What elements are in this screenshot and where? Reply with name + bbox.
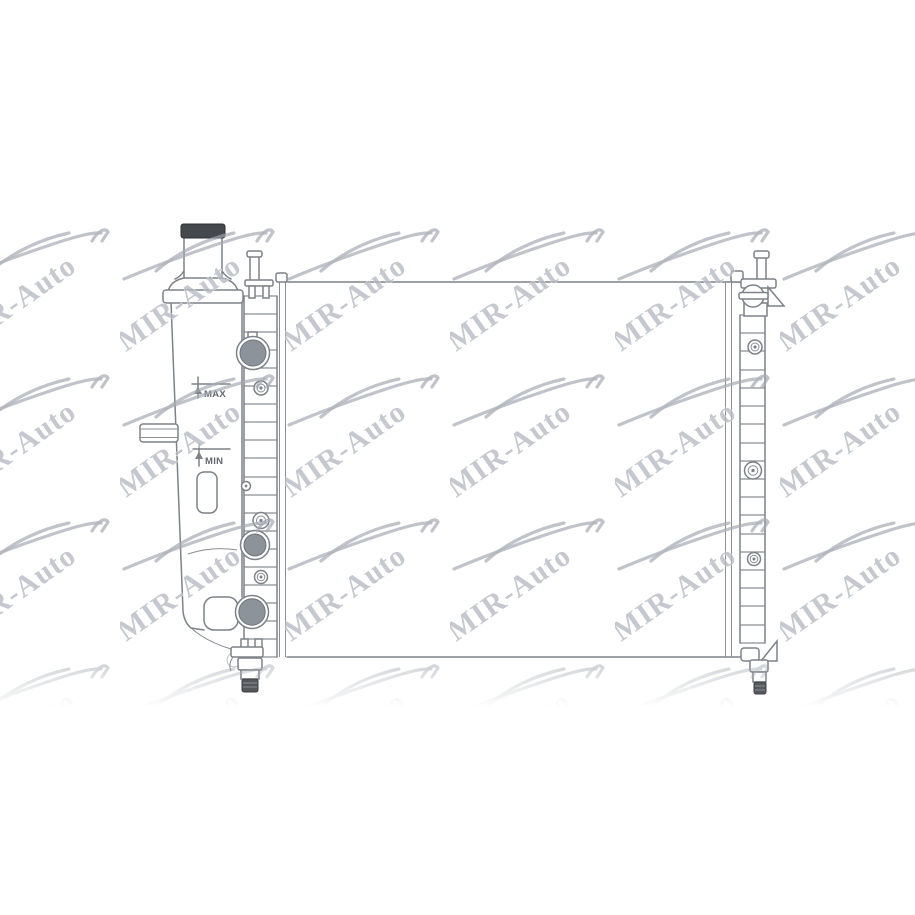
min-level-marker: MIN <box>193 444 230 467</box>
screw-marker <box>253 513 269 529</box>
mounting-bracket <box>140 424 178 442</box>
expansion-tank: MAX MIN <box>140 224 243 649</box>
min-arrow-icon <box>195 452 203 460</box>
right-tank <box>739 251 784 643</box>
top-clip-leg <box>249 286 255 298</box>
tank-drain-curve <box>191 628 231 649</box>
drain-assembly-right <box>741 641 777 694</box>
screw-marker <box>748 340 762 354</box>
screw-marker <box>745 462 762 479</box>
tank-level-curve <box>188 549 237 554</box>
drain-assembly-left <box>227 639 263 692</box>
min-label: MIN <box>205 456 223 467</box>
core-side-plate-right <box>726 282 732 657</box>
screw-marker <box>255 571 268 584</box>
filler-gusset-right <box>768 287 784 306</box>
drain-plug-mid <box>241 670 259 679</box>
top-clip-bar <box>245 280 273 286</box>
drain-bracket-bar <box>231 647 263 657</box>
expansion-cap <box>181 224 225 238</box>
max-arrow-icon <box>194 387 202 395</box>
tank-neck <box>175 237 231 279</box>
drain-plug-top <box>238 658 262 670</box>
hose-port-mid-disk <box>244 534 266 556</box>
screw-marker <box>242 482 251 491</box>
drain-bracket-right <box>741 648 759 661</box>
core-side-plate-left <box>280 278 286 657</box>
max-label: MAX <box>204 389 226 400</box>
radiator-filler-cap-disk <box>240 340 266 366</box>
drain-plug-left <box>242 679 258 692</box>
tank-flange <box>163 290 243 303</box>
screw-marker <box>254 381 268 395</box>
top-clip-leg <box>263 286 269 298</box>
drain-plug-mid <box>753 672 766 682</box>
drain-hook <box>230 657 233 671</box>
radiator-line-drawing: MAX MIN <box>0 0 915 915</box>
sight-window <box>197 472 217 513</box>
screw-marker <box>748 553 761 566</box>
hose-port-bottom-disk <box>239 599 265 625</box>
ports-and-screws <box>236 332 763 629</box>
radiator-product-illustration: MAX MIN <box>0 0 915 915</box>
overflow-pipe-cap-left <box>247 251 262 257</box>
filler-cap-slot <box>739 293 768 300</box>
overflow-pipe-left <box>250 256 259 281</box>
drain-wedge-right <box>761 641 777 661</box>
filler-pipe-right <box>757 257 766 280</box>
core-top-tab-left <box>276 273 287 282</box>
drain-plug-right <box>754 682 766 694</box>
filler-pipe-cap-right <box>754 251 769 258</box>
drain-plug-top <box>750 660 768 672</box>
max-level-marker: MAX <box>192 377 230 400</box>
tank-bottom-outlet <box>204 597 238 630</box>
radiator-core <box>276 271 743 657</box>
